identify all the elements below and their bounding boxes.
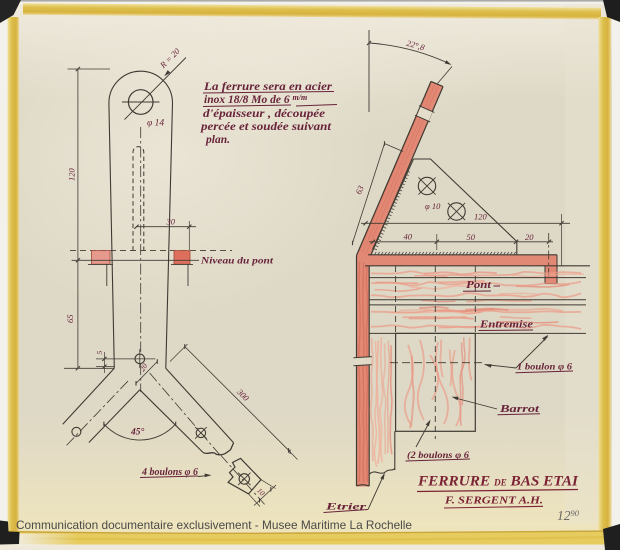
svg-text:40: 40: [404, 232, 413, 242]
svg-text:120: 120: [67, 168, 77, 182]
svg-text:Entremise: Entremise: [479, 320, 534, 331]
svg-text:La ferrure sera en acier: La ferrure sera en acier: [203, 81, 333, 93]
svg-text:50: 50: [467, 232, 476, 242]
svg-text:Barrot: Barrot: [499, 404, 541, 415]
svg-text:d'épaisseur , découpée: d'épaisseur , découpée: [203, 108, 325, 120]
svg-text:percée et soudée suivant: percée et soudée suivant: [200, 121, 332, 133]
svg-text:45°: 45°: [130, 427, 145, 438]
svg-text:Niveau du pont: Niveau du pont: [200, 257, 274, 267]
svg-text:120: 120: [474, 212, 488, 222]
svg-text:Pont: Pont: [466, 280, 493, 291]
svg-text:65: 65: [65, 315, 75, 324]
svg-text:30: 30: [166, 217, 176, 227]
svg-text:F. SERGENT A.H.: F. SERGENT A.H.: [444, 496, 543, 507]
svg-text:Communication documentaire exc: Communication documentaire exclusivement…: [16, 518, 412, 532]
svg-text:φ 14: φ 14: [147, 119, 164, 129]
svg-text:inox 18/8 Mo de 6 m/m: inox 18/8 Mo de 6 m/m: [204, 93, 307, 106]
svg-text:φ 10: φ 10: [425, 201, 441, 211]
svg-text:plan.: plan.: [205, 134, 230, 146]
svg-text:20: 20: [525, 232, 534, 242]
svg-text:5: 5: [95, 351, 104, 355]
